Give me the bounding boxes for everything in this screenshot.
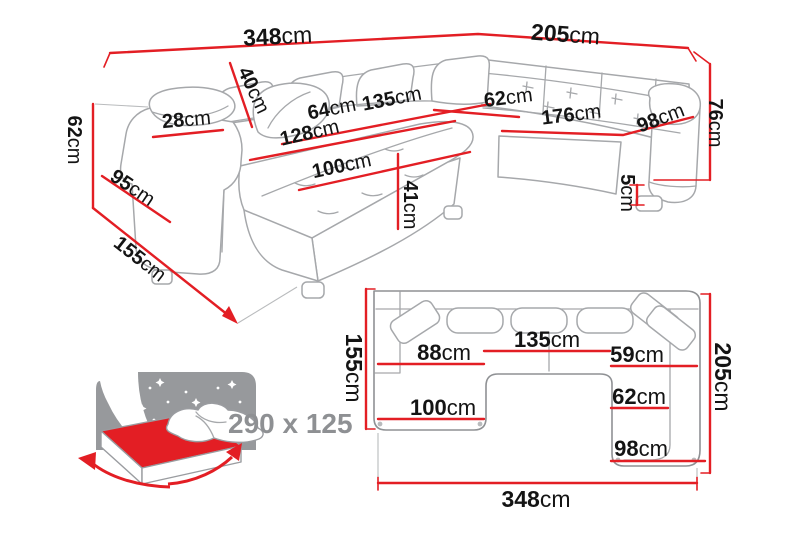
plan-view: 155cm 205cm 348cm 88cm 135cm 59cm 100cm … [341,289,736,512]
dim-label-5: 5cm [616,174,638,212]
chaise-longue [239,122,473,281]
dim-label-62-left: 62cm [63,116,85,165]
dim-line-348-205 [110,34,688,53]
dim-label-59-plan: 59cm [610,342,664,367]
dim-label-348-top: 348cm [242,21,312,51]
corner-cushion [431,56,489,104]
dim-label-41: 41cm [399,181,421,230]
right-base [498,136,621,194]
dim-label-205-top: 205cm [530,19,601,50]
dim-label-135-plan: 135cm [514,327,580,352]
right-foot [636,196,662,211]
dim-label-205-plan: 205cm [710,342,736,411]
dim-label-88-plan: 88cm [417,340,471,365]
diagram-canvas: 348cm 205cm 76cm 62cm 155cm 95cm 28cm 40… [0,0,800,533]
sleeping-size-label: 290 x 125 [228,408,353,439]
dim-label-98-plan: 98cm [614,436,668,461]
sleeping-function-icon: 290 x 125 [78,372,353,487]
dim-label-28: 28cm [161,107,212,133]
dim-label-348-plan: 348cm [501,486,570,512]
dim-label-62-plan: 62cm [612,384,666,409]
dim-label-100-plan: 100cm [410,395,476,420]
sofa-dimension-diagram: 348cm 205cm 76cm 62cm 155cm 95cm 28cm 40… [0,0,800,533]
dim-label-76: 76cm [704,99,726,148]
arrowhead-155 [222,306,238,324]
perspective-view: 348cm 205cm 76cm 62cm 155cm 95cm 28cm 40… [63,19,726,324]
dim-label-155-plan: 155cm [341,333,367,402]
